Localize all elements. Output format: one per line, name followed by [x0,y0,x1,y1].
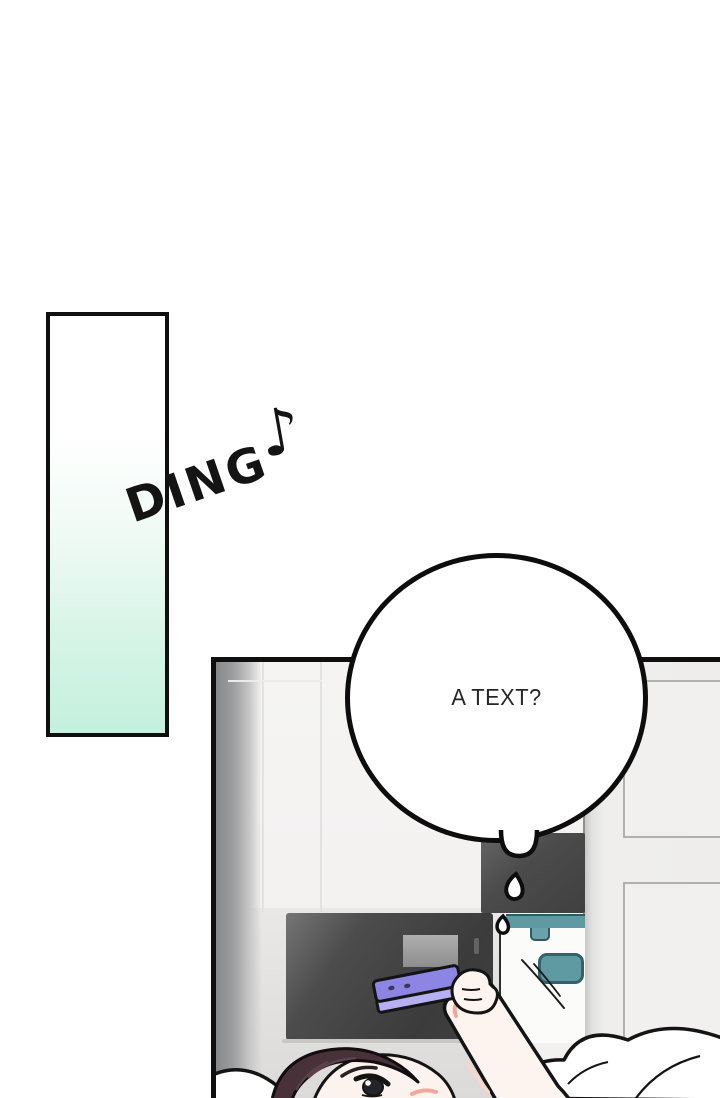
sweat-drop [497,916,508,933]
finger-line [462,989,480,990]
speech-bubble: A TEXT? [345,553,648,843]
comic-page: DING♪ [0,0,720,1098]
speech-bubble-tail-and-drops [494,830,544,942]
eye-glint [365,1080,371,1086]
motion-line [522,960,564,1008]
speech-bubble-text: A TEXT? [357,684,635,711]
speech-bubble-tail [501,830,537,856]
motion-line [534,964,560,996]
hand [452,970,497,1013]
finger-line [464,999,482,1000]
sweat-drop [506,874,522,899]
